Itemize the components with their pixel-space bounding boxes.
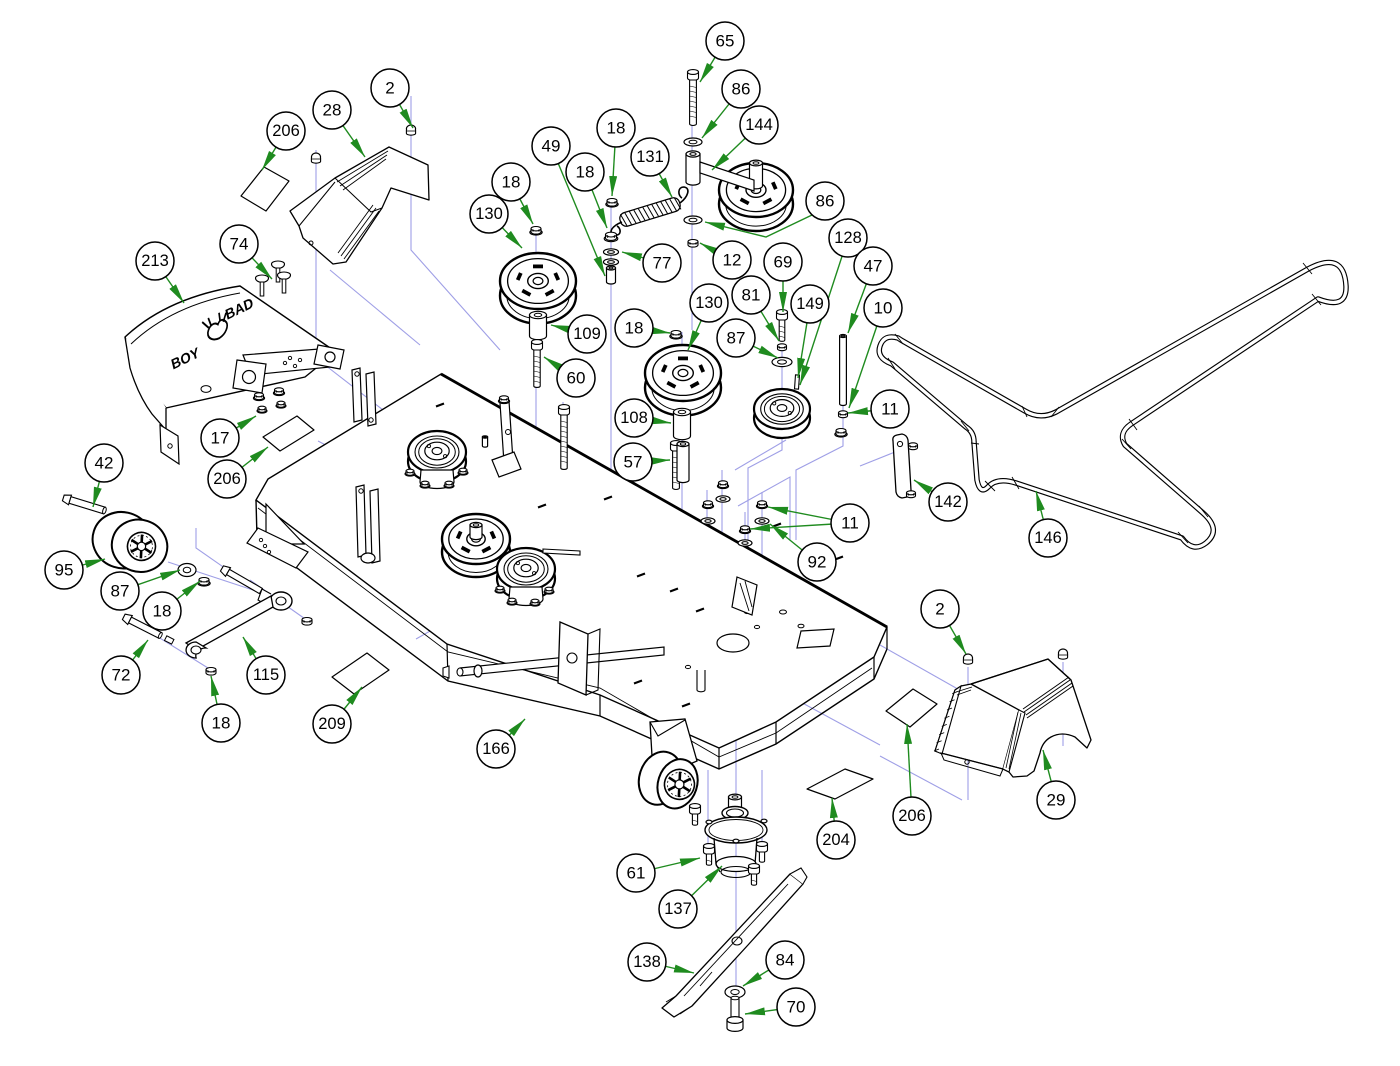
svg-text:86: 86 [816, 192, 835, 211]
svg-text:166: 166 [482, 740, 510, 758]
svg-text:87: 87 [111, 582, 130, 601]
svg-text:18: 18 [153, 602, 172, 621]
svg-text:81: 81 [742, 286, 761, 305]
svg-text:18: 18 [625, 319, 644, 338]
svg-text:144: 144 [745, 116, 773, 134]
svg-text:18: 18 [212, 714, 231, 733]
svg-text:74: 74 [230, 235, 249, 254]
svg-text:69: 69 [774, 253, 793, 272]
svg-text:57: 57 [624, 453, 643, 472]
svg-text:115: 115 [253, 666, 279, 684]
svg-text:209: 209 [318, 715, 346, 733]
svg-text:77: 77 [653, 254, 672, 273]
svg-text:206: 206 [898, 807, 926, 825]
svg-text:12: 12 [723, 251, 742, 270]
svg-text:42: 42 [95, 454, 114, 473]
svg-text:92: 92 [808, 553, 827, 572]
svg-text:28: 28 [323, 101, 342, 120]
svg-text:130: 130 [475, 205, 503, 223]
svg-text:18: 18 [607, 119, 626, 138]
svg-text:65: 65 [716, 32, 735, 51]
svg-text:130: 130 [695, 294, 723, 312]
svg-text:60: 60 [567, 369, 586, 388]
svg-text:149: 149 [796, 295, 824, 313]
svg-text:138: 138 [633, 953, 661, 971]
svg-text:142: 142 [934, 493, 962, 511]
svg-text:2: 2 [935, 600, 944, 619]
svg-text:11: 11 [881, 400, 899, 419]
svg-text:87: 87 [727, 329, 746, 348]
svg-text:84: 84 [776, 951, 795, 970]
svg-text:146: 146 [1034, 529, 1062, 547]
svg-text:109: 109 [573, 325, 601, 343]
svg-text:95: 95 [55, 561, 74, 580]
svg-text:49: 49 [542, 137, 561, 156]
svg-text:18: 18 [502, 173, 521, 192]
svg-text:18: 18 [576, 163, 595, 182]
svg-text:11: 11 [841, 514, 859, 533]
svg-text:213: 213 [141, 252, 169, 270]
svg-text:128: 128 [834, 229, 862, 247]
svg-text:131: 131 [636, 148, 664, 166]
svg-text:29: 29 [1047, 791, 1066, 810]
svg-text:17: 17 [211, 429, 230, 448]
svg-text:61: 61 [627, 864, 646, 883]
svg-text:206: 206 [272, 122, 300, 140]
svg-text:2: 2 [385, 79, 394, 98]
svg-text:108: 108 [620, 409, 648, 427]
svg-text:70: 70 [787, 998, 806, 1017]
svg-text:47: 47 [864, 257, 883, 276]
svg-text:204: 204 [822, 831, 850, 849]
svg-text:206: 206 [213, 470, 241, 488]
svg-text:137: 137 [664, 900, 692, 918]
svg-text:72: 72 [112, 666, 131, 685]
svg-text:10: 10 [874, 299, 893, 318]
svg-text:86: 86 [732, 80, 751, 99]
